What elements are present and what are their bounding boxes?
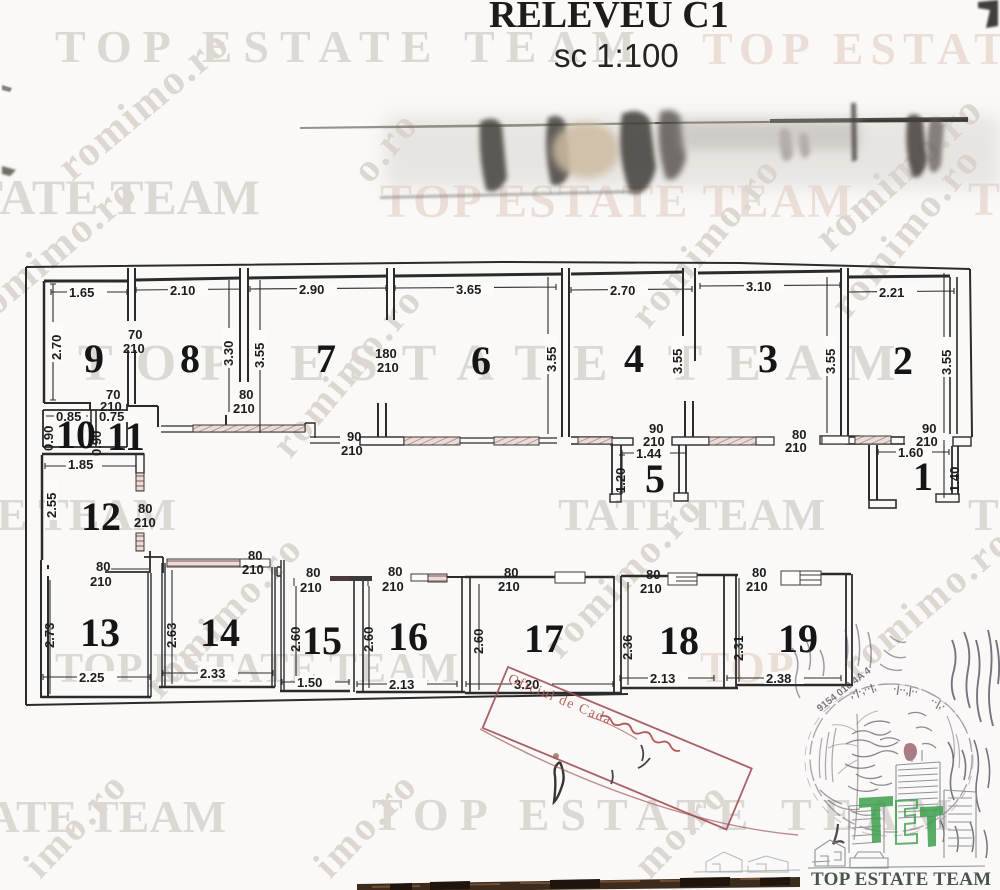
svg-text:1.20: 1.20 [613,468,628,493]
svg-text:80: 80 [239,387,253,402]
svg-text:11: 11 [107,414,145,459]
svg-text:7: 7 [316,336,336,381]
svg-text:1.40: 1.40 [947,467,962,492]
svg-text:2.73: 2.73 [42,623,57,648]
svg-text:90: 90 [347,429,361,444]
svg-text:80: 80 [96,559,110,574]
svg-text:18: 18 [659,618,699,663]
svg-text:2.13: 2.13 [389,677,414,692]
svg-text:2.36: 2.36 [620,635,635,660]
svg-text:3.30: 3.30 [221,341,236,366]
svg-text:2.60: 2.60 [288,627,303,652]
svg-text:2.10: 2.10 [170,283,195,298]
svg-text:210: 210 [377,360,399,375]
svg-text:3.65: 3.65 [456,282,481,297]
svg-text:15: 15 [302,618,342,663]
svg-text:2.90: 2.90 [299,282,324,297]
svg-text:13: 13 [80,610,120,655]
svg-text:sc 1:100: sc 1:100 [554,37,679,74]
svg-text:3.55: 3.55 [823,349,838,374]
svg-text:210: 210 [640,581,662,596]
svg-text:RELEVEU C1: RELEVEU C1 [489,0,729,36]
svg-text:210: 210 [382,579,404,594]
svg-text:2.60: 2.60 [471,629,486,654]
svg-text:8: 8 [180,336,200,381]
svg-text:3.55: 3.55 [670,349,685,374]
svg-text:2.70: 2.70 [610,283,635,298]
svg-text:80: 80 [388,564,402,579]
svg-text:210: 210 [134,515,156,530]
svg-text:210: 210 [785,440,807,455]
svg-text:2.70: 2.70 [49,335,64,360]
svg-text:80: 80 [752,565,766,580]
svg-text:210: 210 [242,562,264,577]
svg-text:210: 210 [123,341,145,356]
svg-text:3.55: 3.55 [544,347,559,372]
svg-text:2.33: 2.33 [200,666,225,681]
svg-text:2.25: 2.25 [79,670,104,685]
svg-text:10: 10 [56,412,96,457]
svg-text:80: 80 [248,548,262,563]
svg-text:0.90: 0.90 [41,426,56,451]
svg-text:2.21: 2.21 [879,285,904,300]
svg-text:2.63: 2.63 [164,623,179,648]
svg-text:210: 210 [746,579,768,594]
svg-text:1.50: 1.50 [297,675,322,690]
svg-text:TOP ESTATE TEAM: TOP ESTATE TEAM [811,869,991,890]
svg-text:16: 16 [388,614,428,659]
svg-text:2.60: 2.60 [361,627,376,652]
svg-text:2.38: 2.38 [766,671,791,686]
svg-text:80: 80 [646,567,660,582]
svg-text:2: 2 [893,338,913,383]
svg-text:1.65: 1.65 [69,285,94,300]
svg-text:9: 9 [84,336,104,381]
svg-text:80: 80 [138,501,152,516]
svg-text:3.55: 3.55 [939,350,954,375]
svg-text:210: 210 [498,579,520,594]
svg-text:3: 3 [758,336,778,381]
svg-text:19: 19 [778,616,818,661]
svg-text:1: 1 [913,454,933,499]
svg-text:5: 5 [645,456,665,501]
svg-text:80: 80 [504,565,518,580]
svg-text:210: 210 [341,443,363,458]
svg-text:TOP ESTATE T: TOP ESTATE T [702,23,1000,74]
svg-text:3.55: 3.55 [252,343,267,368]
svg-text:17: 17 [524,616,564,661]
svg-text:4: 4 [624,336,644,381]
svg-text:70: 70 [128,327,142,342]
svg-text:80: 80 [306,565,320,580]
svg-text:6: 6 [471,338,491,383]
svg-text:2.55: 2.55 [44,493,59,518]
svg-text:210: 210 [90,574,112,589]
svg-text:180: 180 [375,346,397,361]
svg-text:14: 14 [200,610,240,655]
svg-text:12: 12 [81,494,121,539]
svg-text:210: 210 [300,580,322,595]
svg-text:210: 210 [233,401,255,416]
svg-text:1.85: 1.85 [68,457,93,472]
svg-text:2.13: 2.13 [650,671,675,686]
svg-text:3.10: 3.10 [746,279,771,294]
svg-text:2.31: 2.31 [731,636,746,661]
svg-text:TOP ESTATE TEAM: TOP ESTATE TEAM [78,335,920,392]
